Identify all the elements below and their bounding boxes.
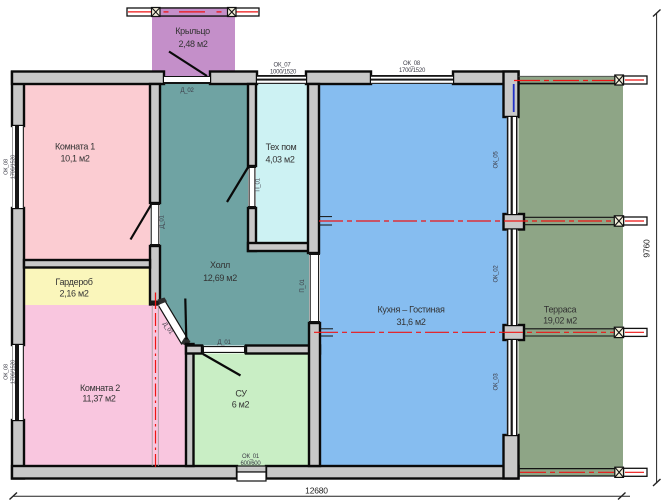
svg-text:19,02 м2: 19,02 м2 [543, 316, 577, 326]
svg-text:9760: 9760 [642, 239, 652, 258]
svg-text:Терраса: Терраса [544, 305, 577, 315]
svg-text:Д_01: Д_01 [217, 340, 231, 346]
svg-text:Кухня – Гостиная: Кухня – Гостиная [377, 305, 444, 315]
svg-text:ОК_05: ОК_05 [494, 151, 500, 169]
svg-text:11,37 м2: 11,37 м2 [82, 394, 115, 404]
svg-text:ОК_03: ОК_03 [494, 373, 500, 391]
svg-text:Гардероб: Гардероб [55, 277, 92, 287]
svg-text:1700/1520: 1700/1520 [11, 155, 17, 179]
svg-text:Тех пом: Тех пом [266, 142, 297, 152]
svg-text:Комната 1: Комната 1 [55, 142, 95, 152]
svg-text:2,48 м2: 2,48 м2 [178, 39, 207, 49]
svg-text:4,03 м2: 4,03 м2 [265, 155, 294, 165]
svg-text:ОК_02: ОК_02 [494, 265, 500, 283]
svg-text:12680: 12680 [305, 486, 328, 496]
svg-text:П_01: П_01 [300, 278, 306, 292]
svg-text:Д_02: Д_02 [180, 88, 194, 94]
svg-text:1700/1520: 1700/1520 [11, 360, 17, 384]
svg-text:Крыльцо: Крыльцо [175, 26, 210, 36]
svg-text:Комната 2: Комната 2 [80, 383, 120, 393]
svg-text:ОК_01: ОК_01 [242, 454, 260, 460]
svg-text:6 м2: 6 м2 [232, 400, 250, 410]
svg-text:Холл: Холл [210, 260, 230, 270]
svg-text:ОК_08: ОК_08 [4, 159, 10, 175]
svg-text:ОК_08: ОК_08 [403, 61, 421, 67]
svg-text:10,1 м2: 10,1 м2 [60, 154, 89, 164]
svg-text:12,69 м2: 12,69 м2 [203, 273, 237, 283]
svg-text:ОК_08: ОК_08 [4, 364, 10, 380]
svg-text:1000/1520: 1000/1520 [270, 70, 297, 76]
svg-text:1700/1520: 1700/1520 [399, 68, 426, 74]
svg-text:ОК_07: ОК_07 [274, 63, 292, 69]
svg-text:2,16 м2: 2,16 м2 [59, 289, 88, 299]
svg-text:600/600: 600/600 [241, 461, 262, 467]
svg-text:Д_01: Д_01 [160, 215, 166, 229]
svg-text:П_01: П_01 [256, 177, 262, 191]
svg-text:СУ: СУ [235, 389, 247, 399]
svg-text:31,6 м2: 31,6 м2 [396, 317, 425, 327]
